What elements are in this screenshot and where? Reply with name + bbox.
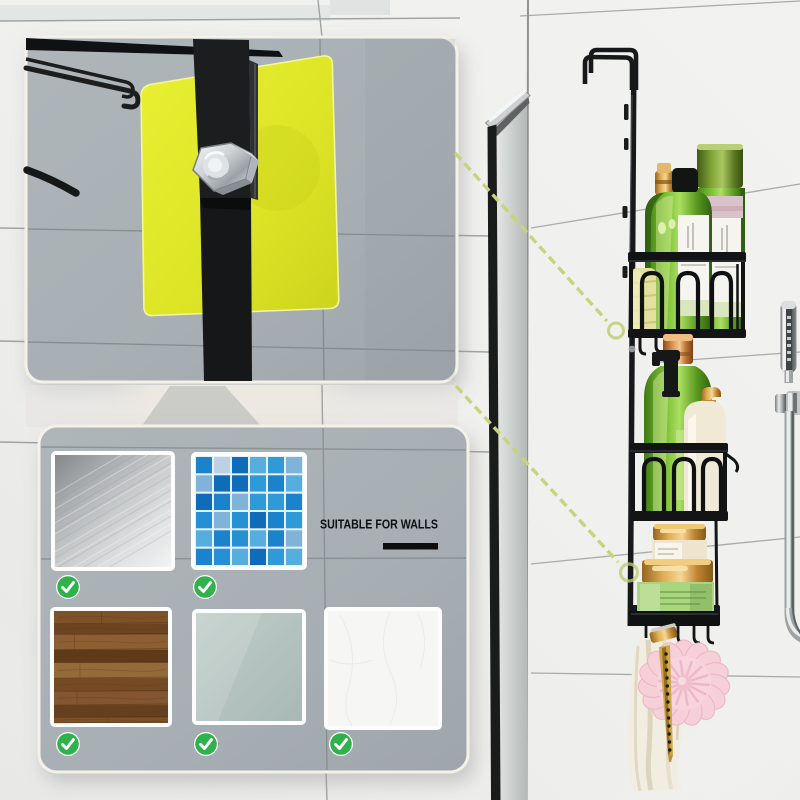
svg-text:SUITABLE FOR WALLS: SUITABLE FOR WALLS — [320, 518, 438, 532]
